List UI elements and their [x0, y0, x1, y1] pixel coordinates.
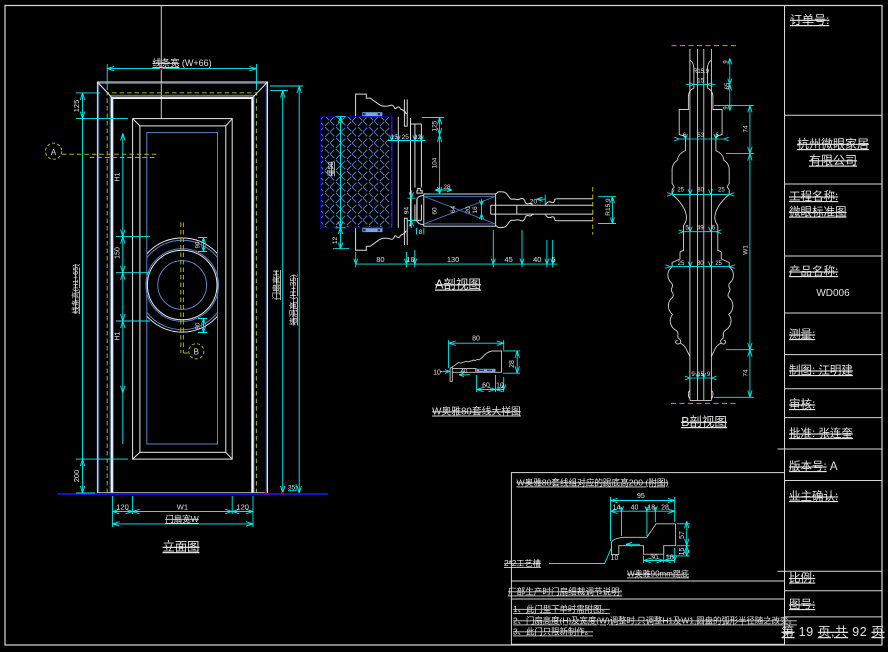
svg-text:A剖视图: A剖视图: [435, 277, 481, 292]
svg-text:28: 28: [661, 504, 669, 511]
svg-text:10: 10: [611, 555, 619, 562]
svg-text:25: 25: [677, 188, 684, 194]
svg-text:18: 18: [647, 504, 655, 511]
svg-text:74: 74: [743, 369, 750, 377]
svg-text:线条高(H1+65): 线条高(H1+65): [70, 264, 80, 314]
svg-text:57: 57: [679, 531, 686, 539]
svg-text:5: 5: [551, 255, 555, 264]
svg-text:104: 104: [432, 157, 439, 168]
svg-text:业主确认:: 业主确认:: [789, 490, 838, 503]
svg-text:订单号:: 订单号:: [790, 13, 829, 27]
svg-text:95: 95: [637, 493, 645, 500]
svg-text:28: 28: [509, 360, 516, 368]
svg-text:14: 14: [613, 504, 621, 511]
svg-text:25: 25: [718, 188, 725, 194]
svg-text:12: 12: [332, 237, 339, 245]
svg-text:130: 130: [447, 255, 460, 264]
svg-text:B: B: [194, 348, 199, 357]
svg-text:1、此门型下单时需附图。: 1、此门型下单时需附图。: [513, 604, 610, 614]
svg-text:120: 120: [236, 503, 249, 512]
svg-text:150: 150: [115, 247, 122, 259]
svg-text:80: 80: [472, 336, 480, 343]
svg-text:W1: W1: [743, 245, 750, 255]
svg-text:2、门扇高度(H)及宽度(W)调整时,只调整H1及W1,圆盘: 2、门扇高度(H)及宽度(W)调整时,只调整H1及W1,圆盘的弧形半径随之改变。: [513, 616, 797, 626]
svg-text:10: 10: [433, 370, 441, 377]
svg-text:94: 94: [404, 207, 411, 215]
svg-text:H1: H1: [115, 331, 122, 340]
svg-text:门扇高H: 门扇高H: [271, 270, 281, 300]
svg-text:30: 30: [650, 555, 658, 562]
svg-text:20: 20: [530, 199, 538, 206]
svg-text:H1: H1: [115, 172, 122, 181]
svg-text:测量:: 测量:: [789, 328, 815, 341]
svg-text:40: 40: [461, 369, 468, 375]
svg-text:120: 120: [116, 503, 129, 512]
svg-text:W奥雅80套线组对应的踢底高200 (附图): W奥雅80套线组对应的踢底高200 (附图): [517, 477, 669, 488]
svg-text:125: 125: [432, 120, 439, 131]
svg-text:45: 45: [504, 255, 512, 264]
svg-text:WD006: WD006: [816, 288, 850, 299]
svg-text:40: 40: [533, 255, 541, 264]
svg-text:200: 200: [72, 470, 81, 483]
svg-text:B剖视图: B剖视图: [681, 414, 727, 429]
svg-text:微眼标准图: 微眼标准图: [789, 205, 847, 219]
svg-text:A: A: [51, 148, 57, 157]
svg-text:立面图: 立面图: [163, 539, 200, 554]
svg-text:杭州微眼家居: 杭州微眼家居: [797, 136, 869, 151]
svg-text:8: 8: [419, 229, 423, 236]
svg-text:125: 125: [72, 100, 81, 113]
svg-text:有限公司: 有限公司: [809, 154, 857, 168]
svg-text:W1: W1: [177, 503, 188, 512]
svg-text:15: 15: [391, 134, 399, 141]
svg-text:门扇宽W: 门扇宽W: [165, 514, 199, 524]
svg-text:15: 15: [697, 79, 704, 85]
svg-text:3、此门只限新制作。: 3、此门只限新制作。: [513, 627, 593, 637]
svg-text:版本号: A: 版本号: A: [789, 459, 838, 473]
svg-text:厂部生产时门扇细裁调节说明:: 厂部生产时门扇细裁调节说明:: [508, 586, 622, 597]
svg-text:10: 10: [406, 255, 414, 264]
svg-text:90: 90: [196, 241, 202, 248]
svg-text:60: 60: [482, 383, 490, 390]
svg-text:15: 15: [679, 548, 686, 556]
svg-text:35: 35: [288, 485, 296, 492]
svg-text:80: 80: [697, 261, 704, 267]
svg-text:16: 16: [666, 555, 674, 562]
svg-text:12: 12: [414, 134, 422, 141]
svg-text:80: 80: [376, 255, 384, 264]
svg-text:工程名称:: 工程名称:: [789, 189, 838, 203]
svg-text:90: 90: [196, 322, 202, 329]
svg-text:W奥雅90mm踢底: W奥雅90mm踢底: [627, 569, 689, 579]
svg-text:审核:: 审核:: [789, 397, 815, 411]
svg-text:20: 20: [465, 206, 472, 214]
svg-text:第 19 页,共 92 页: 第 19 页,共 92 页: [782, 625, 885, 639]
svg-text:25: 25: [402, 134, 410, 141]
svg-text:40: 40: [631, 504, 639, 511]
svg-text:图号:: 图号:: [789, 598, 815, 611]
svg-text:28: 28: [443, 184, 451, 191]
svg-text:16: 16: [472, 206, 479, 214]
svg-text:比例:: 比例:: [789, 571, 815, 585]
svg-text:80: 80: [697, 188, 704, 194]
svg-text:74: 74: [743, 125, 750, 133]
svg-text:线条宽 (W+66): 线条宽 (W+66): [152, 57, 211, 68]
svg-text:批准: 张连奎: 批准: 张连奎: [789, 426, 853, 440]
svg-text:R15.9: R15.9: [605, 198, 612, 216]
svg-text:R15.9: R15.9: [693, 69, 710, 75]
svg-text:25: 25: [715, 261, 722, 267]
svg-text:25: 25: [678, 261, 685, 267]
svg-text:53: 53: [697, 133, 704, 139]
svg-text:墙50: 墙50: [326, 162, 335, 177]
svg-text:15: 15: [697, 372, 704, 378]
svg-text:制图: 江明建: 制图: 江明建: [789, 363, 853, 377]
svg-text:产品名称:: 产品名称:: [789, 264, 838, 278]
svg-text:2*2工艺槽: 2*2工艺槽: [504, 558, 541, 568]
svg-text:墙洞高 (H+35): 墙洞高 (H+35): [288, 274, 298, 325]
svg-text:10: 10: [496, 383, 504, 390]
svg-text:49: 49: [697, 226, 704, 232]
svg-text:64: 64: [450, 206, 457, 214]
svg-text:65: 65: [725, 82, 731, 89]
svg-text:60: 60: [432, 207, 439, 215]
svg-text:W奥雅80套线大样图: W奥雅80套线大样图: [432, 405, 521, 418]
